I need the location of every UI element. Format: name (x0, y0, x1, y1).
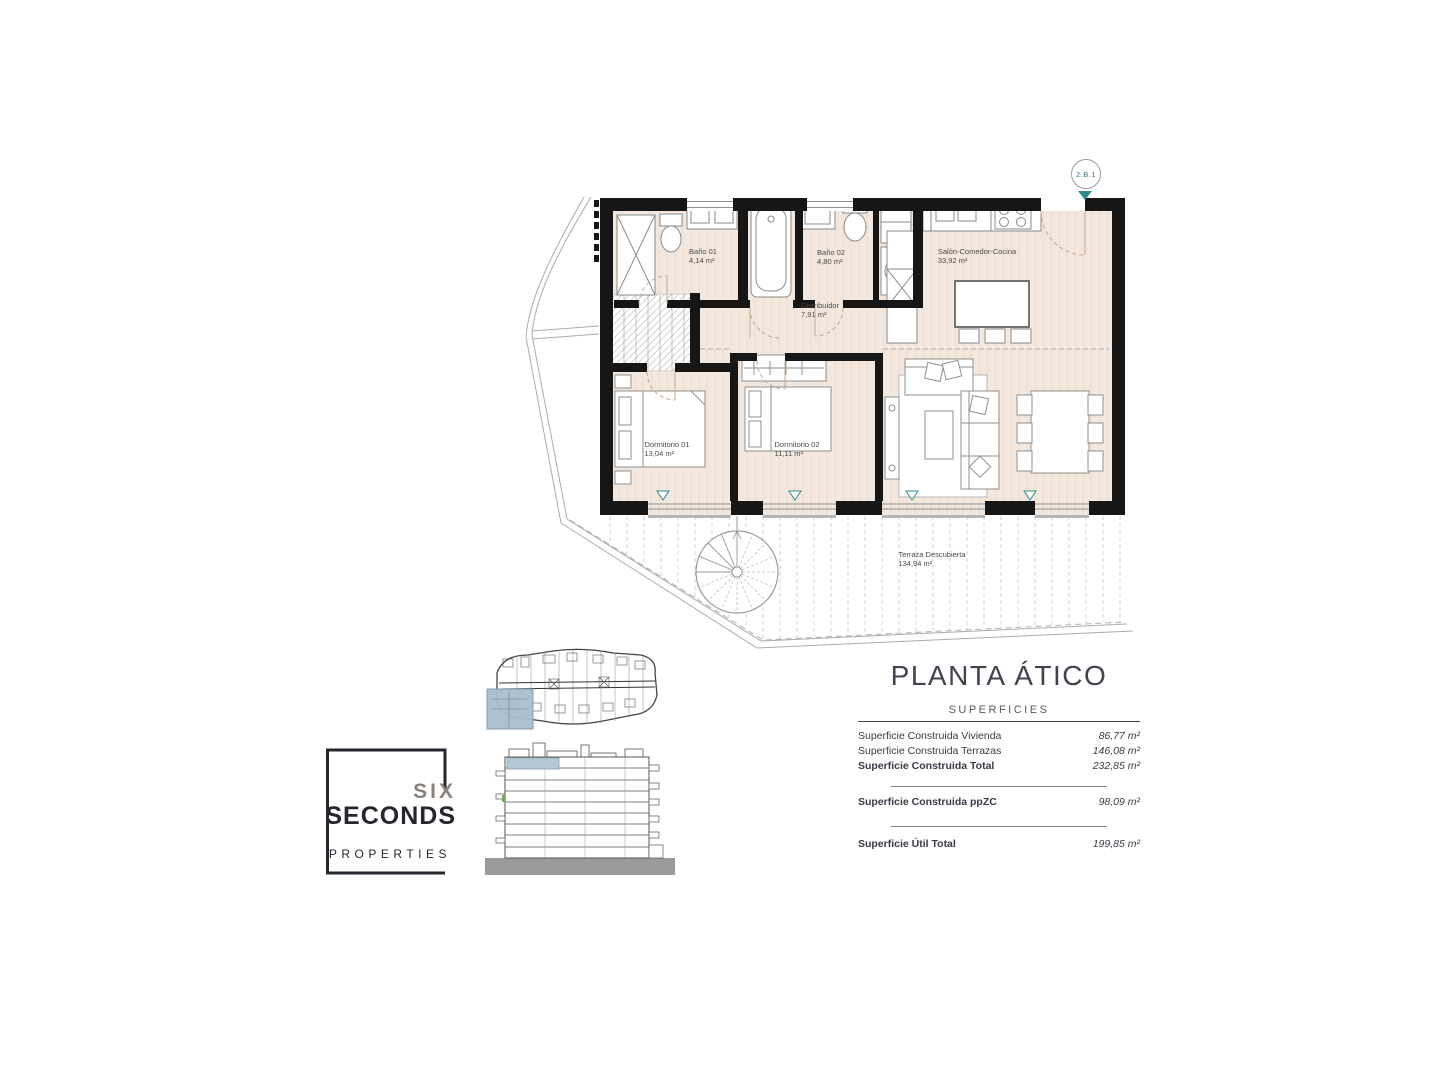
floor-plan: Baño 01 4,14 m² Baño 02 4,80 m² Distribu… (495, 135, 1145, 675)
table-row: Superficie Construida Total 232,85 m² (858, 758, 1140, 773)
room-label-distribuidor: Distribuidor 7,91 m² (801, 301, 839, 319)
page-title: PLANTA ÁTICO (858, 660, 1140, 692)
table-row: Superficie Construida Terrazas 146,08 m² (858, 743, 1140, 758)
table-row: Superficie Construida Vivienda 86,77 m² (858, 728, 1140, 743)
entrance-arrow-icon (1078, 191, 1092, 200)
table-row: Superficie Útil Total 199,85 m² (858, 836, 1140, 851)
room-label-terraza: Terraza Descubierta 134,94 m² (898, 550, 965, 568)
spiral-staircase (696, 516, 778, 613)
room-label-bano-02: Baño 02 4,80 m² (817, 248, 845, 266)
elevation-unit-highlight (507, 758, 559, 769)
room-label-dormitorio-01: Dormitorio 01 13,04 m² (644, 440, 689, 458)
floor-plan-drawing (495, 135, 1145, 675)
logo-word-seconds: SECONDS (325, 802, 456, 831)
keyplan-unit-highlight (487, 689, 533, 729)
terrace-edge (570, 520, 1125, 640)
surfaces-table: Superficie Construida Vivienda 86,77 m² … (858, 728, 1140, 851)
logo-word-properties: PROPERTIES (329, 847, 451, 861)
table-row: Superficie Construida ppZC 98,09 m² (858, 794, 1140, 809)
room-label-dormitorio-02: Dormitorio 02 11,11 m² (774, 440, 819, 458)
terrace-deck (610, 516, 1120, 640)
logo-word-six: SIX (413, 780, 456, 804)
page: Baño 01 4,14 m² Baño 02 4,80 m² Distribu… (0, 0, 1440, 1080)
building-elevation (477, 737, 684, 905)
elevation-ground (485, 858, 675, 875)
surfaces-heading: SUPERFICIES (858, 704, 1140, 722)
unit-number-badge: 2.B.1 (1071, 159, 1101, 189)
room-label-bano-01: Baño 01 4,14 m² (689, 247, 717, 265)
brand-logo: SIX SECONDS PROPERTIES (326, 748, 452, 876)
title-block: PLANTA ÁTICO SUPERFICIES Superficie Cons… (858, 660, 1140, 851)
elevation-body (505, 757, 649, 858)
unit-locator-keyplan (483, 643, 668, 738)
room-label-salon: Salón-Comedor-Cocina 33,92 m² (938, 247, 1016, 265)
unit-number-label: 2.B.1 (1076, 170, 1096, 179)
